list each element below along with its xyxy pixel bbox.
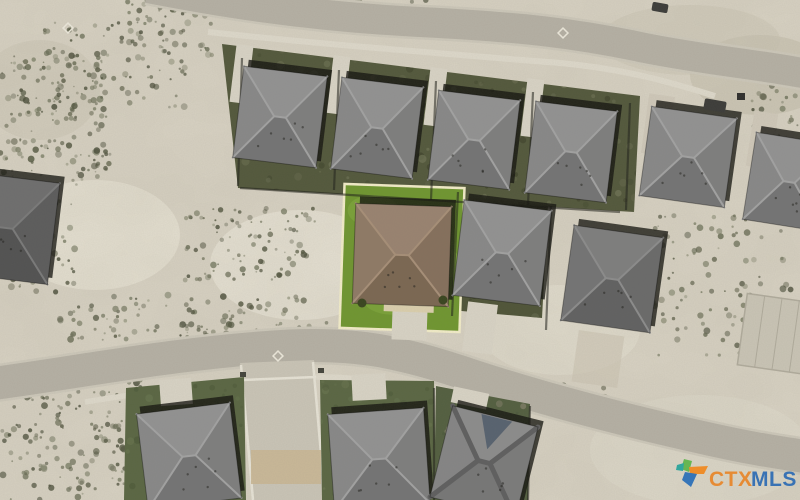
watermark-mls-text: MLS xyxy=(751,468,797,491)
watermark-ctx-text: CTX xyxy=(709,468,753,491)
aerial-photo: CTX MLS xyxy=(0,0,800,500)
photo-grain xyxy=(0,0,800,500)
aerial-photo-canvas: CTX MLS xyxy=(0,0,800,500)
